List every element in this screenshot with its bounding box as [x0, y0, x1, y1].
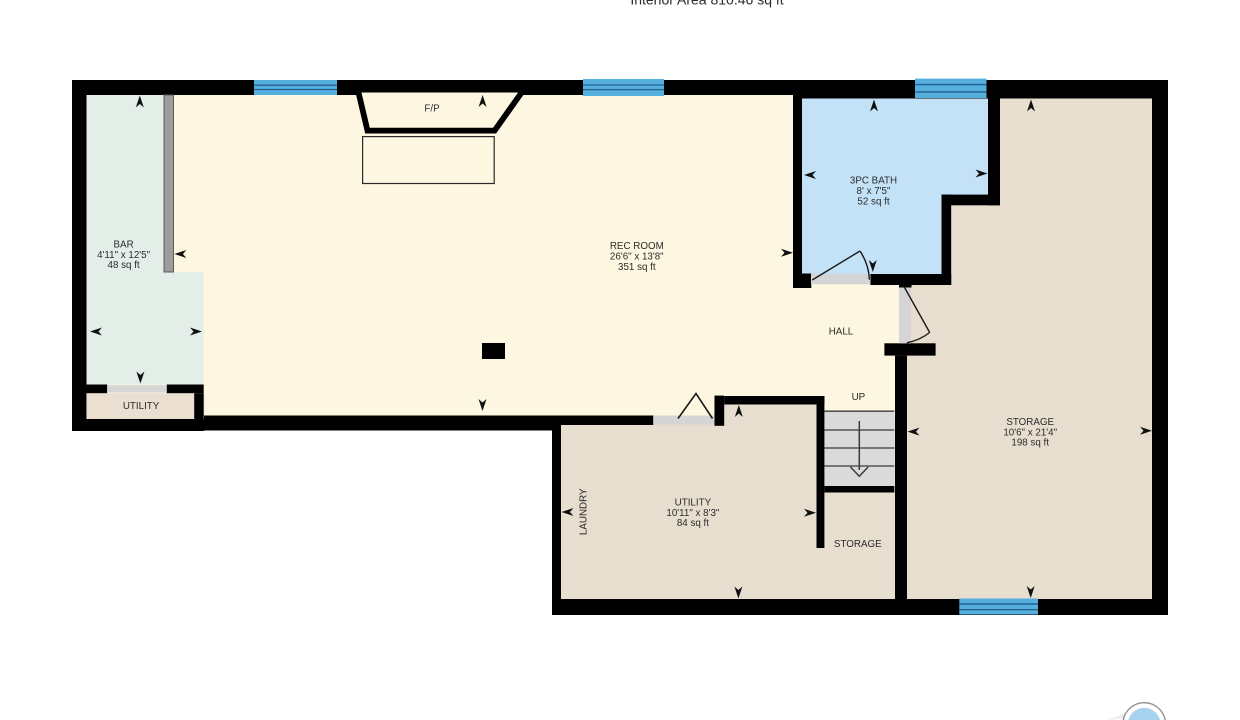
- svg-text:LAUNDRY: LAUNDRY: [578, 488, 589, 535]
- svg-text:198 sq ft: 198 sq ft: [1011, 438, 1049, 449]
- svg-text:UP: UP: [852, 392, 866, 403]
- svg-text:STORAGE: STORAGE: [834, 539, 882, 550]
- svg-text:3PC BATH: 3PC BATH: [850, 176, 897, 187]
- svg-text:F/P: F/P: [424, 104, 440, 115]
- svg-text:26'6" x 13'8": 26'6" x 13'8": [610, 251, 664, 262]
- svg-text:4'11" x 12'5": 4'11" x 12'5": [97, 250, 151, 261]
- svg-text:BAR: BAR: [114, 239, 134, 250]
- svg-text:HALL: HALL: [829, 327, 854, 338]
- svg-text:STORAGE: STORAGE: [1006, 417, 1054, 428]
- svg-text:48 sq ft: 48 sq ft: [108, 260, 140, 271]
- svg-text:351 sq ft: 351 sq ft: [618, 262, 656, 273]
- svg-text:84 sq ft: 84 sq ft: [677, 518, 709, 529]
- svg-text:52 sq ft: 52 sq ft: [857, 197, 889, 208]
- svg-text:Interior Area 810.46 sq ft: Interior Area 810.46 sq ft: [630, 0, 783, 8]
- svg-text:UTILITY: UTILITY: [123, 401, 160, 412]
- svg-text:8' x 7'5": 8' x 7'5": [857, 186, 891, 197]
